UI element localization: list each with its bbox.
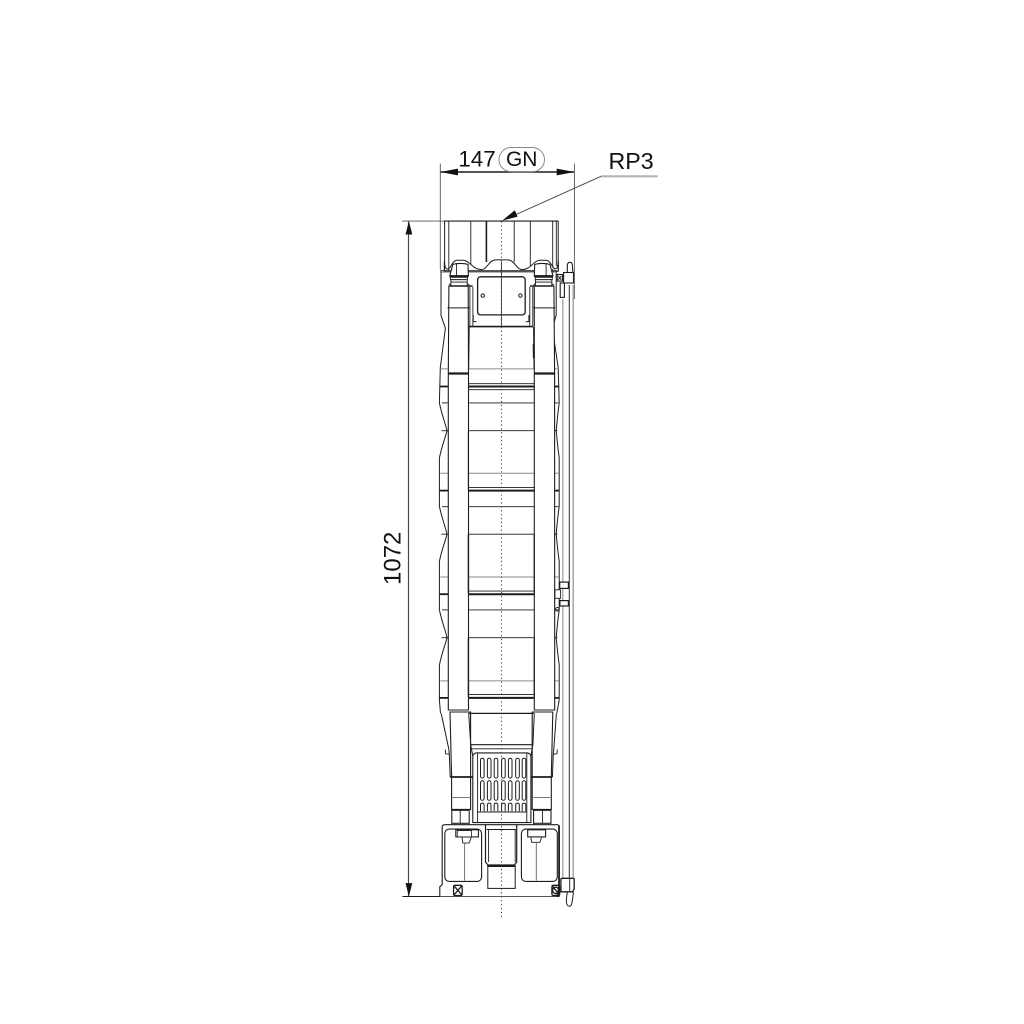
svg-text:RP3: RP3 [609,148,654,174]
svg-text:147: 147 [458,147,495,172]
svg-text:1072: 1072 [379,532,406,585]
svg-text:GN: GN [506,148,538,171]
